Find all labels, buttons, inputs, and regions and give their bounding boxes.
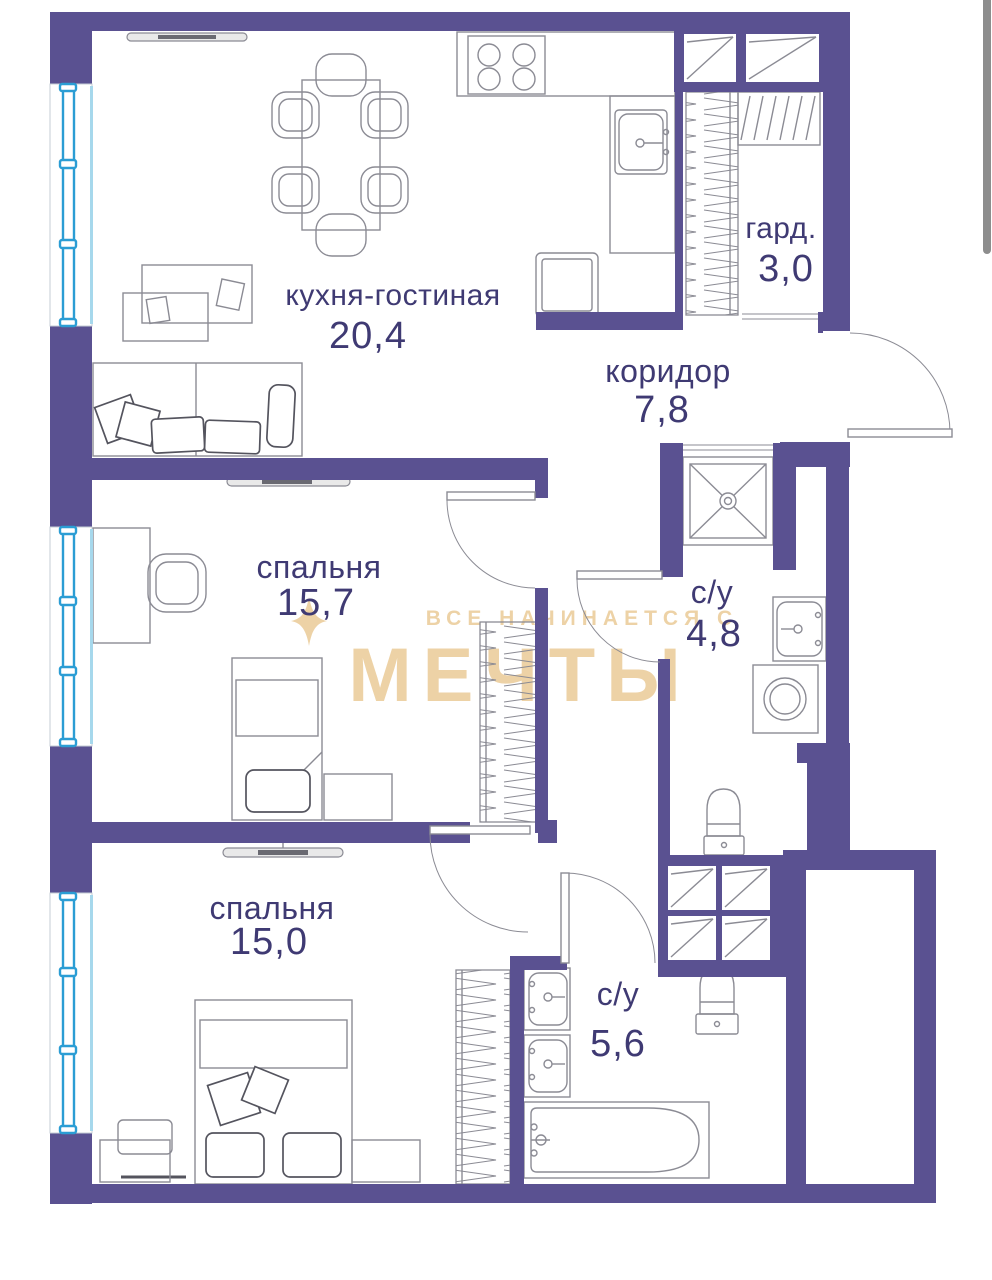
wall-bath1-east-low bbox=[807, 763, 850, 855]
wall-v1-low bbox=[535, 588, 548, 833]
single-bed bbox=[232, 658, 322, 820]
bathroom-1-sink bbox=[773, 597, 826, 661]
wall-bath1-west-top bbox=[660, 443, 683, 577]
window-living bbox=[50, 84, 93, 326]
entrance-opening bbox=[823, 331, 850, 435]
door-leaf bbox=[577, 571, 662, 579]
label-kitchen-living: кухня-гостиная bbox=[285, 279, 500, 312]
door-leaf bbox=[561, 873, 569, 963]
toilet-bathroom-1 bbox=[704, 789, 744, 855]
nightstand-bedroom-1 bbox=[324, 774, 392, 820]
bathtub bbox=[524, 1102, 709, 1178]
wall-kitchen-south bbox=[536, 312, 683, 330]
area-corridor: 7,8 bbox=[634, 389, 690, 431]
fridge bbox=[536, 253, 598, 317]
wall-shower-east bbox=[773, 443, 796, 570]
pillow bbox=[283, 1133, 341, 1177]
door-leaf bbox=[447, 492, 535, 500]
door-arc bbox=[565, 873, 655, 963]
wall-bath1-west-low bbox=[658, 659, 670, 857]
entrance-door bbox=[848, 333, 952, 437]
shower bbox=[683, 445, 773, 545]
label-bathroom-2: с/у bbox=[597, 976, 639, 1012]
door-arc bbox=[850, 333, 950, 433]
sofa bbox=[93, 363, 302, 456]
stove bbox=[468, 36, 545, 94]
wall-v1-top bbox=[535, 458, 548, 498]
label-wardrobe-room: гард. bbox=[745, 212, 816, 245]
area-bedroom-1: 15,7 bbox=[277, 582, 355, 624]
wardrobe-bedroom-2 bbox=[456, 970, 510, 1184]
kitchen-counter bbox=[457, 32, 675, 253]
bathroom-2-sink-1 bbox=[524, 968, 570, 1030]
door-leaf bbox=[848, 429, 952, 437]
wardrobe-bedroom-1 bbox=[480, 622, 536, 822]
scrollbar-thumb[interactable] bbox=[983, 0, 991, 254]
tv-living bbox=[127, 33, 247, 41]
bathroom-2-sink-2 bbox=[524, 1035, 570, 1097]
floor-plan: ВСЕ НАЧИНАЕТСЯ С МЕЧТЫ bbox=[0, 0, 992, 1280]
tv-bedroom-2 bbox=[223, 843, 343, 857]
pillow bbox=[246, 770, 310, 812]
wall-bath1-step bbox=[797, 743, 850, 763]
kitchen-sink bbox=[615, 110, 669, 174]
area-kitchen-living: 20,4 bbox=[329, 315, 407, 357]
floor-plan-screenshot: ВСЕ НАЧИНАЕТСЯ С МЕЧТЫ bbox=[0, 0, 992, 1280]
pillow bbox=[206, 1133, 264, 1177]
door-leaf bbox=[430, 826, 530, 834]
area-bedroom-2: 15,0 bbox=[230, 921, 308, 963]
wall-east-horizontal bbox=[783, 850, 936, 870]
coffee-tables bbox=[123, 265, 252, 341]
area-bathroom-1: 4,8 bbox=[686, 613, 742, 655]
label-bathroom-1: с/у bbox=[691, 574, 733, 610]
door-arc bbox=[447, 500, 535, 588]
wall-bath2-west bbox=[510, 956, 524, 1184]
bench bbox=[118, 1120, 186, 1177]
wardrobe-threshold bbox=[742, 314, 818, 319]
wardrobe-shelves bbox=[686, 92, 738, 315]
bathroom-2-door bbox=[561, 873, 655, 963]
window-bedroom-2 bbox=[50, 893, 93, 1133]
area-wardrobe-room: 3,0 bbox=[758, 248, 814, 290]
nightstand-right bbox=[352, 1140, 420, 1182]
wall-living-bedroom1 bbox=[92, 458, 536, 480]
washing-machine bbox=[753, 665, 818, 733]
desk bbox=[93, 528, 150, 643]
label-bedroom-1: спальня bbox=[257, 549, 382, 585]
dining-chairs bbox=[272, 54, 408, 256]
wall-right-low bbox=[914, 850, 936, 1203]
wall-bath1-east bbox=[826, 442, 849, 743]
double-bed bbox=[195, 1000, 352, 1184]
wall-bath2-east bbox=[786, 870, 806, 1184]
dining-table bbox=[302, 80, 380, 230]
bedroom-1-door bbox=[447, 492, 535, 588]
desk-chair bbox=[148, 554, 206, 612]
toilet-bathroom-2 bbox=[696, 967, 738, 1034]
wall-bedroom1-bedroom2 bbox=[92, 822, 470, 843]
window-bedroom-1 bbox=[50, 527, 93, 746]
wall-bottom bbox=[50, 1184, 936, 1203]
wall-gard-stub bbox=[818, 312, 850, 333]
wall-bedroom2-jamb bbox=[538, 820, 557, 843]
hanging-rail bbox=[738, 92, 820, 145]
area-bathroom-2: 5,6 bbox=[590, 1023, 646, 1065]
label-corridor: коридор bbox=[605, 353, 731, 389]
door-arc bbox=[430, 834, 528, 932]
